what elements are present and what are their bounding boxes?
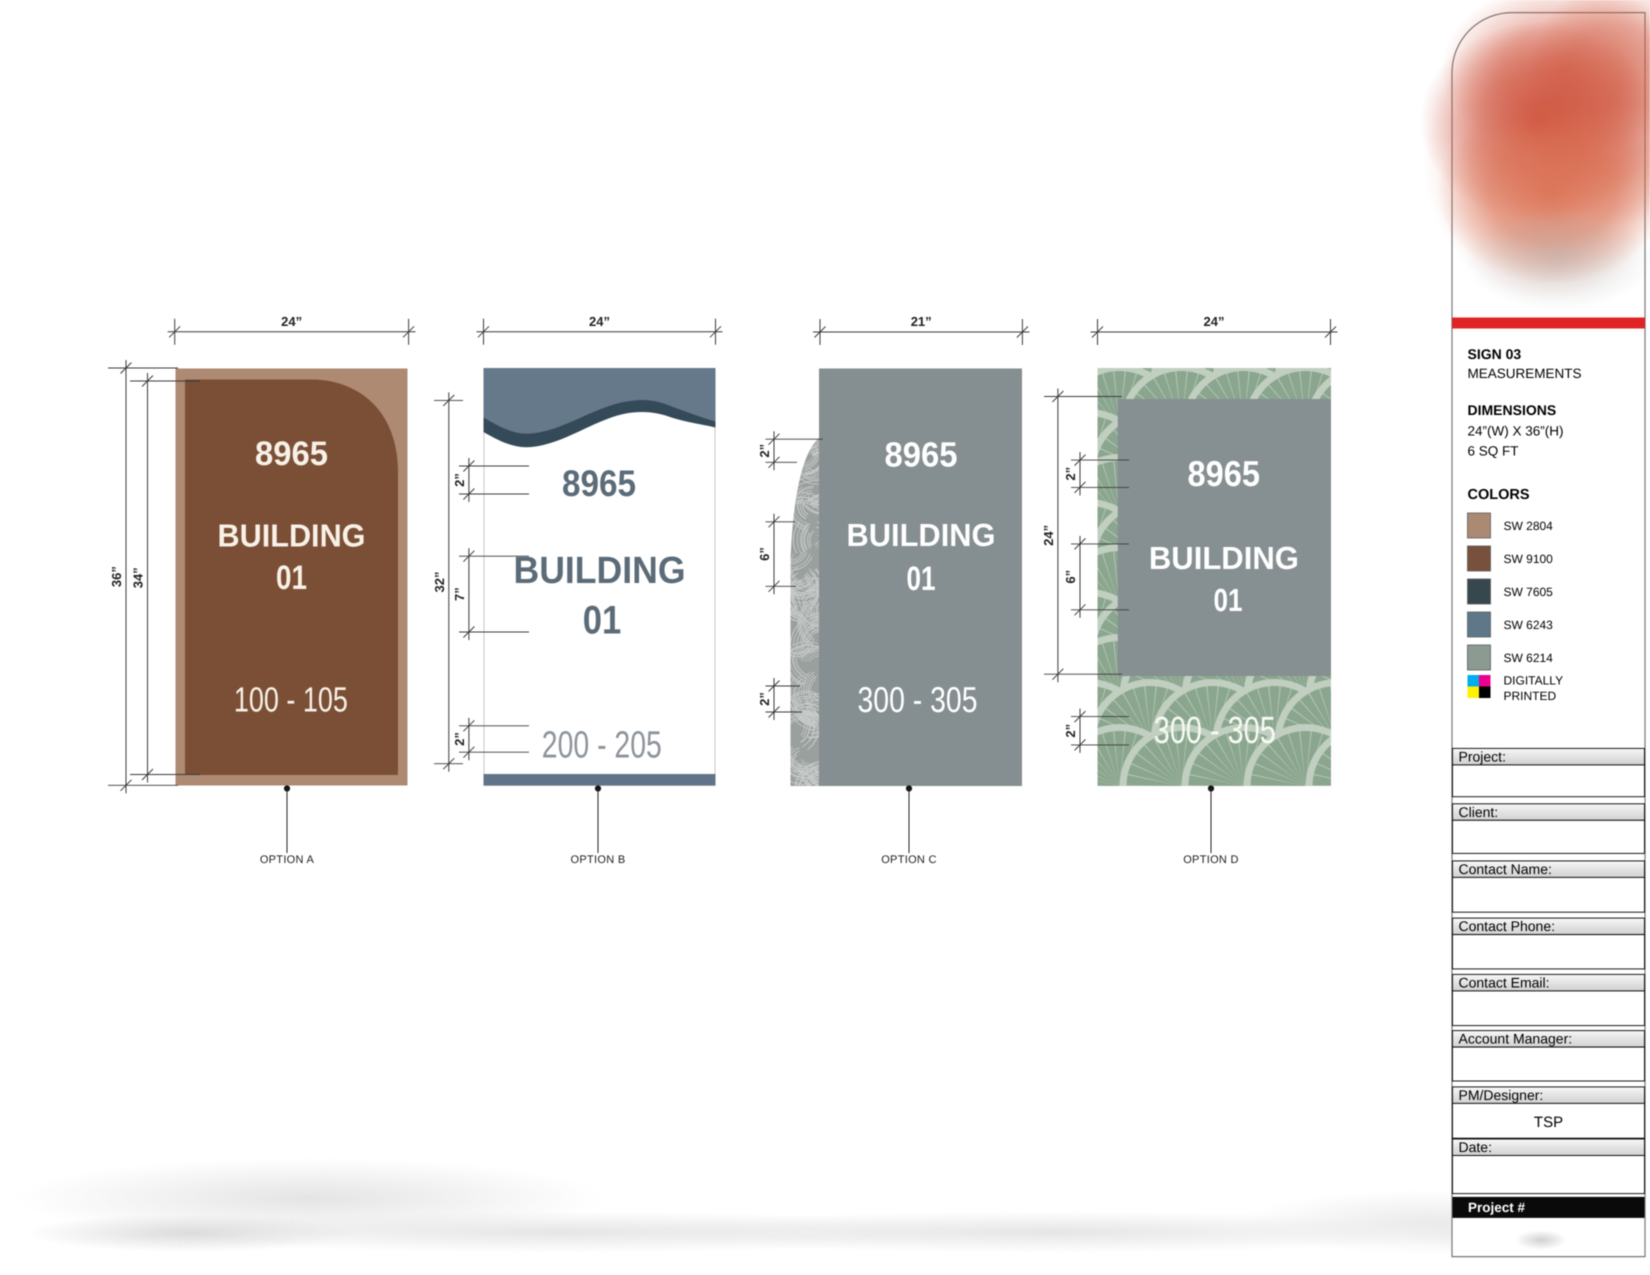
svg-text:MEASUREMENTS: MEASUREMENTS [1468, 366, 1582, 381]
svg-text:8965: 8965 [255, 435, 328, 473]
svg-text:24”: 24” [281, 314, 302, 329]
svg-text:2”: 2” [1063, 467, 1078, 481]
svg-text:100 - 105: 100 - 105 [234, 681, 348, 720]
svg-text:SW 6214: SW 6214 [1504, 651, 1554, 665]
svg-text:BUILDING: BUILDING [218, 518, 366, 554]
svg-text:21”: 21” [911, 314, 932, 329]
svg-text:Client:: Client: [1459, 804, 1499, 820]
svg-text:Contact Phone:: Contact Phone: [1459, 918, 1556, 934]
svg-text:36”: 36” [109, 566, 124, 587]
svg-text:Date:: Date: [1459, 1139, 1492, 1155]
svg-text:DIMENSIONS: DIMENSIONS [1468, 402, 1557, 418]
svg-text:01: 01 [276, 559, 307, 597]
svg-text:SIGN 03: SIGN 03 [1468, 346, 1522, 362]
svg-text:BUILDING: BUILDING [514, 550, 686, 592]
svg-text:24”: 24” [589, 314, 610, 329]
svg-text:PRINTED: PRINTED [1504, 689, 1557, 703]
svg-text:Contact Email:: Contact Email: [1459, 974, 1550, 990]
svg-text:300 - 305: 300 - 305 [858, 679, 978, 720]
svg-text:OPTION C: OPTION C [881, 854, 937, 866]
svg-text:SW 2804: SW 2804 [1504, 519, 1554, 533]
svg-text:Account Manager:: Account Manager: [1459, 1031, 1573, 1047]
svg-text:200 - 205: 200 - 205 [542, 725, 662, 767]
svg-text:2”: 2” [452, 473, 467, 487]
svg-text:Contact Name:: Contact Name: [1459, 861, 1552, 877]
svg-text:8965: 8965 [562, 463, 636, 504]
svg-text:Project:: Project: [1459, 748, 1506, 764]
svg-text:01: 01 [907, 560, 936, 598]
svg-text:PM/Designer:: PM/Designer: [1459, 1087, 1544, 1103]
svg-text:8965: 8965 [1188, 453, 1261, 494]
svg-text:SW 9100: SW 9100 [1504, 552, 1554, 566]
svg-text:SW 6243: SW 6243 [1504, 618, 1554, 632]
svg-text:2”: 2” [757, 692, 772, 706]
svg-text:BUILDING: BUILDING [847, 517, 996, 553]
svg-text:2”: 2” [1063, 724, 1078, 738]
svg-text:24”(W) X 36”(H): 24”(W) X 36”(H) [1468, 424, 1564, 439]
svg-text:DIGITALLY: DIGITALLY [1504, 674, 1564, 688]
svg-text:SW 7605: SW 7605 [1504, 585, 1554, 599]
svg-text:2”: 2” [452, 732, 467, 746]
svg-text:8965: 8965 [885, 436, 958, 475]
svg-text:2”: 2” [757, 444, 772, 458]
svg-text:6 SQ FT: 6 SQ FT [1468, 444, 1519, 459]
svg-text:BUILDING: BUILDING [1149, 540, 1299, 576]
svg-text:300 - 305: 300 - 305 [1154, 710, 1276, 752]
svg-text:TSP: TSP [1534, 1114, 1563, 1131]
svg-text:OPTION B: OPTION B [571, 854, 626, 866]
svg-text:OPTION D: OPTION D [1183, 854, 1239, 866]
svg-text:6”: 6” [757, 547, 772, 561]
svg-text:24”: 24” [1204, 314, 1225, 329]
svg-text:24”: 24” [1041, 525, 1056, 546]
svg-text:01: 01 [583, 599, 622, 643]
svg-text:Project #: Project # [1468, 1200, 1526, 1215]
svg-text:6”: 6” [1063, 570, 1078, 584]
svg-text:OPTION A: OPTION A [260, 854, 315, 866]
svg-text:COLORS: COLORS [1468, 487, 1530, 503]
svg-text:01: 01 [1214, 582, 1243, 618]
svg-text:32”: 32” [432, 572, 447, 593]
svg-text:7”: 7” [452, 587, 467, 601]
svg-text:34”: 34” [131, 567, 146, 588]
